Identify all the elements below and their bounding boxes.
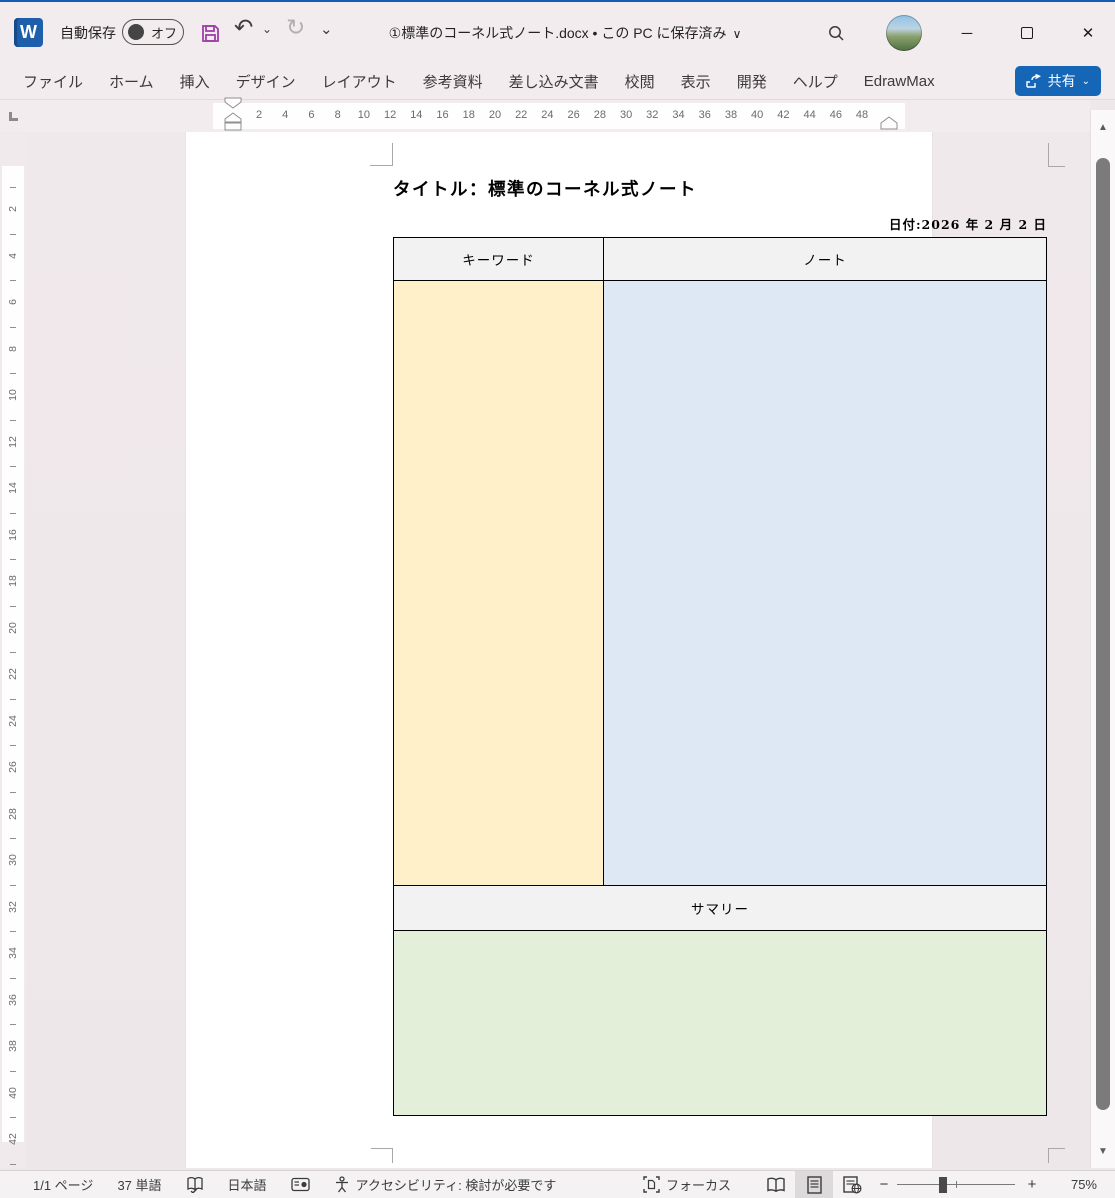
v-ruler-tick [10, 466, 16, 467]
v-ruler-tick [10, 652, 16, 653]
scroll-up-icon[interactable]: ▲ [1091, 122, 1115, 133]
vertical-scrollbar[interactable]: ▲ ▼ [1090, 110, 1115, 1168]
proofing-errors-icon[interactable] [186, 1176, 204, 1193]
tab-stop-L-icon [9, 112, 18, 121]
h-ruler-number: 38 [720, 109, 742, 121]
zoom-slider-center-tick [956, 1181, 957, 1188]
v-ruler-number: 14 [7, 475, 19, 501]
summary-header-cell[interactable]: サマリー [394, 886, 1046, 931]
autosave-toggle[interactable]: オフ [122, 19, 184, 45]
v-ruler-number: 36 [7, 987, 19, 1013]
h-ruler-number: 34 [668, 109, 690, 121]
note-body-cell[interactable] [604, 281, 1046, 886]
v-ruler-number: 28 [7, 801, 19, 827]
v-ruler-tick [10, 327, 16, 328]
ribbon-tab-3[interactable]: デザイン [223, 71, 309, 92]
undo-dropdown-chevron-icon[interactable]: ⌄ [262, 22, 272, 36]
h-ruler-number: 24 [536, 109, 558, 121]
summary-body-cell[interactable] [394, 931, 1046, 1115]
vertical-ruler[interactable]: 24681012141618202224262830323436384042 [0, 132, 26, 1168]
horizontal-ruler[interactable]: 2468101214161820222426283032343638404244… [26, 100, 1090, 132]
h-ruler-number: 12 [379, 109, 401, 121]
ribbon-tab-10[interactable]: ヘルプ [780, 71, 851, 92]
v-ruler-tick [10, 838, 16, 839]
focus-icon [643, 1176, 660, 1193]
word-count[interactable]: 37 単語 [117, 1175, 161, 1194]
print-layout-button[interactable] [795, 1171, 833, 1198]
v-ruler-tick [10, 1117, 16, 1118]
margin-crop-mark-top-left [370, 143, 393, 166]
v-ruler-number: 32 [7, 894, 19, 920]
ribbon-tab-5[interactable]: 参考資料 [410, 71, 496, 92]
indent-marker-right-icon[interactable] [880, 116, 898, 130]
minimize-button[interactable]: ─ [945, 12, 989, 54]
ribbon-tab-7[interactable]: 校閲 [612, 71, 668, 92]
v-ruler-number: 20 [7, 615, 19, 641]
h-ruler-number: 22 [510, 109, 532, 121]
titlebar: W 自動保存 オフ ↶ ⌄ ↻ ⌄ ①標準のコーネル式ノート.docx • この… [0, 2, 1115, 62]
document-title-text: ①標準のコーネル式ノート.docx • この PC に保存済み [389, 25, 727, 41]
autosave-state: オフ [151, 23, 177, 42]
v-ruler-number: 30 [7, 847, 19, 873]
margin-crop-mark-top-right [1048, 143, 1065, 167]
zoom-slider[interactable] [897, 1171, 1015, 1198]
focus-label: フォーカス [666, 1175, 731, 1194]
read-mode-button[interactable] [757, 1171, 795, 1198]
toggle-knob-icon [128, 24, 144, 40]
undo-button[interactable]: ↶ [234, 14, 253, 41]
search-button[interactable] [824, 21, 848, 45]
maximize-button[interactable] [1005, 12, 1049, 54]
ribbon-tab-0[interactable]: ファイル [10, 71, 96, 92]
redo-button[interactable]: ↻ [286, 14, 305, 41]
v-ruler-tick [10, 420, 16, 421]
h-ruler-number: 44 [799, 109, 821, 121]
search-icon [827, 24, 845, 42]
print-layout-icon [807, 1176, 822, 1194]
v-ruler-tick [10, 187, 16, 188]
share-button[interactable]: 共有 ⌄ [1015, 66, 1101, 96]
document-canvas[interactable]: タイトル：標準のコーネル式ノート 日付:2026 年 2 月 2 日 キーワード… [26, 132, 1090, 1168]
ribbon-tab-bar: ファイルホーム挿入デザインレイアウト参考資料差し込み文書校閲表示開発ヘルプEdr… [0, 62, 1115, 100]
scroll-down-icon[interactable]: ▼ [1091, 1146, 1115, 1157]
v-ruler-number: 10 [7, 382, 19, 408]
v-ruler-tick [10, 1071, 16, 1072]
h-ruler-number: 42 [772, 109, 794, 121]
ribbon-tab-9[interactable]: 開発 [724, 71, 780, 92]
web-layout-icon [843, 1176, 862, 1194]
quick-access-toolbar-chevron-icon[interactable]: ⌄ [320, 20, 333, 38]
accessibility-person-icon [334, 1176, 350, 1193]
language-indicator[interactable]: 日本語 [228, 1175, 267, 1194]
ribbon-tabs: ファイルホーム挿入デザインレイアウト参考資料差し込み文書校閲表示開発ヘルプEdr… [10, 62, 948, 100]
v-ruler-number: 18 [7, 568, 19, 594]
keyword-header-cell[interactable]: キーワード [394, 238, 604, 281]
h-ruler-number: 10 [353, 109, 375, 121]
ribbon-tab-6[interactable]: 差し込み文書 [496, 71, 612, 92]
h-ruler-number: 32 [641, 109, 663, 121]
save-button[interactable] [197, 20, 223, 46]
h-ruler-number: 16 [432, 109, 454, 121]
v-ruler-tick [10, 234, 16, 235]
v-ruler-tick [10, 373, 16, 374]
note-header-cell[interactable]: ノート [604, 238, 1046, 281]
ribbon-tab-1[interactable]: ホーム [96, 71, 167, 92]
autosave-label: 自動保存 [60, 23, 116, 43]
word-window: W 自動保存 オフ ↶ ⌄ ↻ ⌄ ①標準のコーネル式ノート.docx • この… [0, 0, 1115, 1198]
h-ruler-numbers: 2468101214161820222426283032343638404244… [213, 103, 905, 129]
h-ruler-number: 46 [825, 109, 847, 121]
keyword-body-cell[interactable] [394, 281, 604, 886]
cornell-note-table[interactable]: キーワード ノート サマリー [393, 237, 1047, 1116]
note-title[interactable]: タイトル：標準のコーネル式ノート [393, 176, 697, 201]
share-label: 共有 [1048, 71, 1076, 91]
web-layout-button[interactable] [833, 1171, 871, 1198]
zoom-level[interactable]: 75% [1051, 1177, 1097, 1192]
v-ruler-tick [10, 745, 16, 746]
v-ruler-number: 24 [7, 708, 19, 734]
status-bar: 1/1 ページ 37 単語 日本語 [0, 1170, 1115, 1198]
accessibility-text: アクセシビリティ: 検討が必要です [356, 1175, 557, 1194]
v-ruler-tick [10, 280, 16, 281]
focus-mode-button[interactable]: フォーカス [643, 1175, 731, 1194]
v-ruler-number: 8 [7, 336, 19, 362]
v-ruler-number: 4 [7, 243, 19, 269]
v-ruler-number: 16 [7, 522, 19, 548]
h-ruler-number: 8 [327, 109, 349, 121]
share-icon [1026, 74, 1042, 88]
v-ruler-number: 38 [7, 1033, 19, 1059]
scrollbar-thumb[interactable] [1096, 158, 1110, 1110]
margin-crop-mark-bottom-right [1048, 1148, 1065, 1163]
h-ruler-number: 20 [484, 109, 506, 121]
macro-record-icon[interactable] [291, 1177, 310, 1192]
h-ruler-number: 4 [274, 109, 296, 121]
zoom-in-button[interactable]: + [1019, 1176, 1045, 1193]
read-mode-icon [766, 1177, 786, 1193]
v-ruler-number: 26 [7, 754, 19, 780]
document-page[interactable]: タイトル：標準のコーネル式ノート 日付:2026 年 2 月 2 日 キーワード… [185, 132, 933, 1168]
share-chevron-icon: ⌄ [1082, 76, 1090, 87]
zoom-out-button[interactable]: − [871, 1176, 897, 1193]
v-ruler-number: 40 [7, 1080, 19, 1106]
close-button[interactable]: ✕ [1066, 12, 1110, 54]
v-ruler-tick [10, 978, 16, 979]
margin-crop-mark-bottom-left [371, 1148, 393, 1163]
v-ruler-number: 2 [7, 196, 19, 222]
v-ruler-tick [10, 1024, 16, 1025]
v-ruler-tick [10, 885, 16, 886]
ribbon-tab-2[interactable]: 挿入 [167, 71, 223, 92]
v-ruler-number: 6 [7, 289, 19, 315]
maximize-icon [1021, 27, 1033, 39]
indent-markers-left-icon[interactable] [224, 97, 242, 132]
zoom-slider-thumb[interactable] [939, 1177, 947, 1193]
v-ruler-tick [10, 606, 16, 607]
user-avatar[interactable] [886, 15, 922, 51]
v-ruler-tick [10, 559, 16, 560]
v-ruler-tick [10, 792, 16, 793]
h-ruler-number: 2 [248, 109, 270, 121]
h-ruler-number: 28 [589, 109, 611, 121]
h-ruler-number: 30 [615, 109, 637, 121]
ribbon-tab-11[interactable]: EdrawMax [851, 73, 948, 90]
ribbon-tab-4[interactable]: レイアウト [309, 71, 410, 92]
v-ruler-tick [10, 1164, 16, 1165]
accessibility-status[interactable]: アクセシビリティ: 検討が必要です [334, 1175, 557, 1194]
v-ruler-tick [10, 513, 16, 514]
h-ruler-number: 48 [851, 109, 873, 121]
document-title[interactable]: ①標準のコーネル式ノート.docx • この PC に保存済み∨ [355, 23, 775, 43]
h-ruler-number: 6 [300, 109, 322, 121]
h-ruler-number: 36 [694, 109, 716, 121]
word-app-icon[interactable]: W [14, 18, 43, 47]
h-ruler-number: 40 [746, 109, 768, 121]
v-ruler-tick [10, 931, 16, 932]
v-ruler-number: 34 [7, 940, 19, 966]
ribbon-tab-8[interactable]: 表示 [668, 71, 724, 92]
v-ruler-number: 12 [7, 429, 19, 455]
h-ruler-number: 18 [458, 109, 480, 121]
note-date[interactable]: 日付:2026 年 2 月 2 日 [756, 214, 1047, 233]
v-ruler-tick [10, 699, 16, 700]
save-floppy-icon [200, 23, 221, 44]
v-ruler-number: 22 [7, 661, 19, 687]
h-ruler-number: 14 [405, 109, 427, 121]
page-count[interactable]: 1/1 ページ [33, 1175, 93, 1194]
tab-stop-selector[interactable] [0, 100, 26, 132]
title-dropdown-chevron-icon: ∨ [733, 27, 742, 41]
v-ruler-number: 42 [7, 1126, 19, 1152]
h-ruler-number: 26 [563, 109, 585, 121]
